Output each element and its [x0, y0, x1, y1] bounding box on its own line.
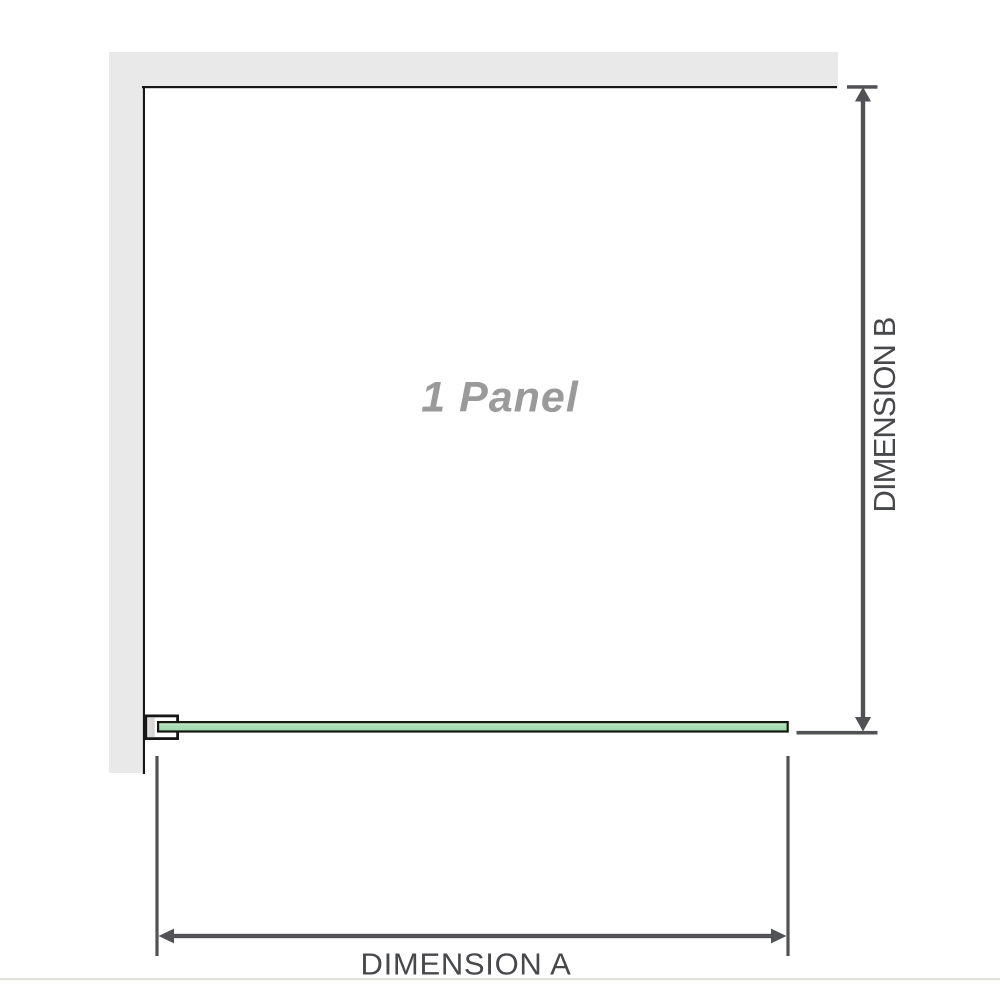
- svg-text:1 Panel: 1 Panel: [421, 374, 579, 422]
- svg-text:DIMENSION B: DIMENSION B: [867, 317, 902, 512]
- svg-text:DIMENSION A: DIMENSION A: [361, 947, 572, 982]
